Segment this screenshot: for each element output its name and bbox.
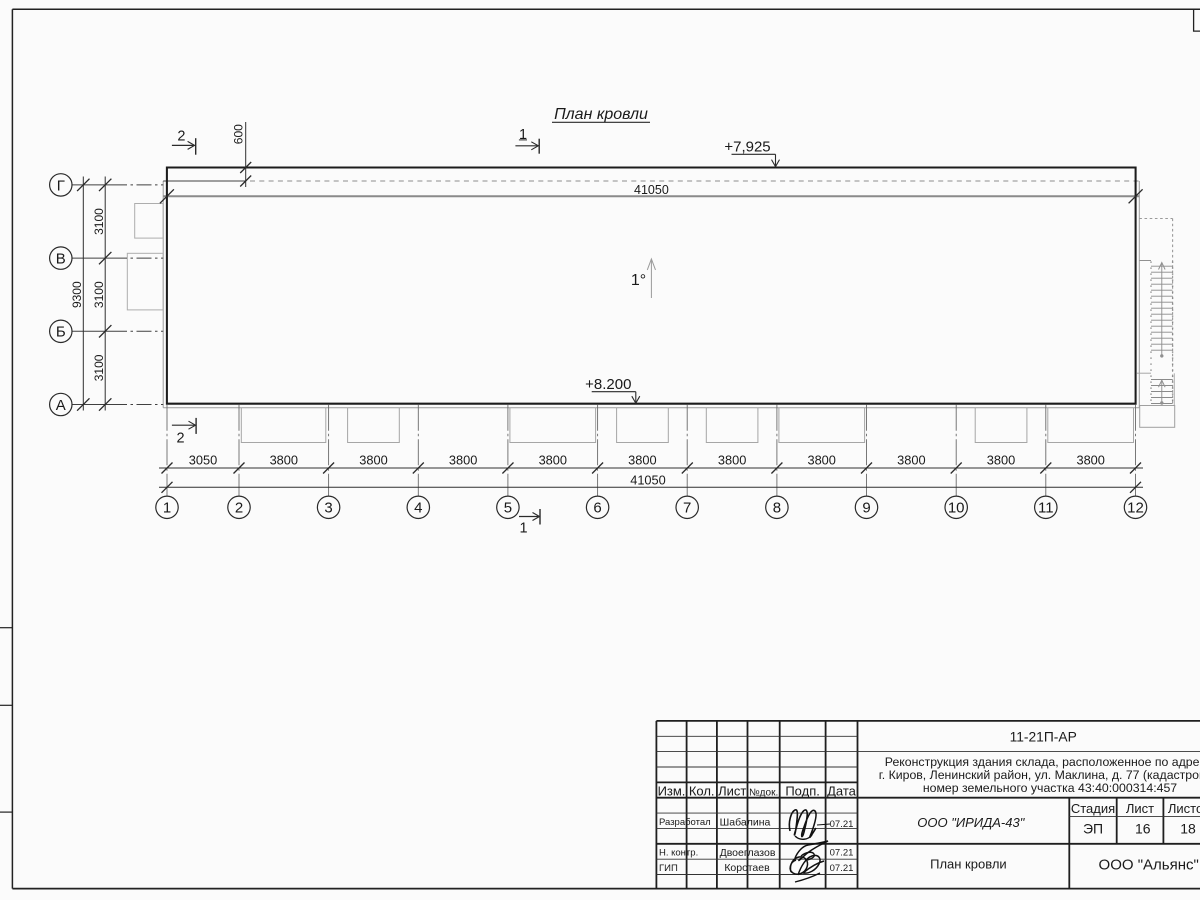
svg-text:9300: 9300 [70,281,84,308]
svg-text:Лист: Лист [718,783,746,798]
svg-text:+8.200: +8.200 [585,376,631,393]
svg-text:1: 1 [163,500,171,517]
svg-text:2: 2 [177,431,185,447]
svg-text:3800: 3800 [897,453,925,468]
svg-text:номер земельного участка 43:40: номер земельного участка 43:40:000314:45… [923,781,1177,795]
svg-text:ГИП: ГИП [659,863,678,874]
svg-text:Изм.: Изм. [658,783,686,798]
svg-text:3050: 3050 [189,453,217,468]
svg-text:Дата: Дата [827,783,857,798]
svg-text:3800: 3800 [449,453,477,468]
svg-text:Стадия: Стадия [1071,801,1115,816]
svg-text:3800: 3800 [628,453,656,468]
svg-text:11-21П-АР: 11-21П-АР [1010,730,1077,745]
svg-text:3800: 3800 [1076,453,1104,468]
svg-text:6: 6 [593,500,601,517]
svg-text:3100: 3100 [92,208,106,235]
svg-text:г. Киров, Ленинский район, ул.: г. Киров, Ленинский район, ул. Маклина, … [879,768,1200,782]
svg-text:3100: 3100 [92,354,106,381]
svg-text:А: А [56,397,66,414]
svg-text:ЭП: ЭП [1083,820,1103,836]
svg-text:Подп.: Подп. [785,783,820,798]
svg-text:3: 3 [324,500,332,517]
svg-text:07.21: 07.21 [830,848,854,859]
svg-text:07.21: 07.21 [830,863,854,874]
svg-text:Лист: Лист [1126,801,1154,816]
svg-text:3800: 3800 [359,453,387,468]
svg-text:9: 9 [862,500,870,517]
svg-text:3800: 3800 [807,453,835,468]
svg-text:10: 10 [948,500,965,517]
svg-text:Г: Г [57,177,65,194]
svg-text:8: 8 [773,500,781,517]
svg-text:Реконструкция здания склада, р: Реконструкция здания склада, расположенн… [885,755,1200,769]
svg-text:3100: 3100 [92,281,106,308]
svg-text:1°: 1° [631,272,646,289]
svg-text:11: 11 [1038,500,1054,517]
svg-text:3800: 3800 [987,453,1015,468]
svg-text:2: 2 [177,128,185,144]
svg-text:600: 600 [232,124,246,144]
svg-text:2: 2 [235,500,243,517]
svg-text:Коротаев: Коротаев [724,862,770,874]
svg-text:Разработал: Разработал [659,817,711,828]
svg-text:41050: 41050 [630,472,666,487]
svg-text:+7,925: +7,925 [724,138,770,155]
svg-text:18: 18 [1180,820,1196,836]
svg-text:План кровли: План кровли [930,857,1007,872]
svg-text:ООО "ИРИДА-43": ООО "ИРИДА-43" [917,815,1025,830]
svg-text:План кровли: План кровли [554,106,648,123]
svg-text:Кол.: Кол. [689,783,715,798]
svg-text:Двоеглазов: Двоеглазов [720,847,776,859]
svg-text:3800: 3800 [539,453,567,468]
svg-text:Н. контр.: Н. контр. [659,847,698,858]
svg-text:12: 12 [1127,500,1144,517]
svg-text:ООО "Альянс": ООО "Альянс" [1099,857,1199,874]
svg-text:В: В [56,251,66,268]
svg-text:5: 5 [504,500,512,517]
svg-text:16: 16 [1135,820,1151,836]
svg-text:Листов: Листов [1168,801,1200,816]
svg-text:3800: 3800 [718,453,746,468]
svg-text:41050: 41050 [634,183,669,197]
svg-text:07.21: 07.21 [830,819,854,830]
svg-text:1: 1 [519,521,527,537]
svg-text:Шабалина: Шабалина [720,816,771,828]
svg-text:7: 7 [683,500,691,517]
svg-text:1: 1 [519,127,527,143]
svg-text:3800: 3800 [270,453,298,468]
svg-text:4: 4 [414,500,422,517]
svg-text:№док.: №док. [749,787,778,798]
svg-text:Б: Б [56,324,66,341]
